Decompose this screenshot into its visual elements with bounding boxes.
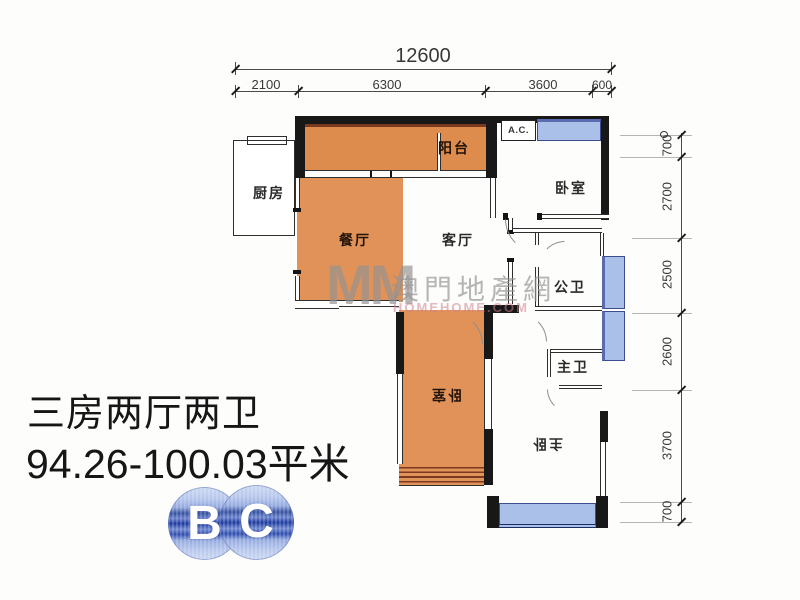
- room-label-bedroom-mid: 卧室: [424, 388, 468, 402]
- block-logo-circle-c: C: [219, 485, 294, 560]
- window-master-bath: [602, 311, 625, 361]
- room-label-kitchen: 厨房: [247, 186, 291, 200]
- wall: [596, 496, 608, 528]
- door-arc: [539, 241, 565, 267]
- room-label-dining: 餐厅: [333, 233, 377, 247]
- wall-thin: [295, 276, 300, 302]
- door-jamb: [293, 208, 301, 212]
- dim-line: [681, 133, 682, 523]
- door-jamb: [293, 270, 301, 274]
- wall-thin: [295, 178, 300, 210]
- door-arc: [518, 313, 547, 342]
- dim-right-seg1: 700: [661, 118, 674, 174]
- door-jamb: [390, 171, 392, 177]
- dim-right-seg3: 2500: [661, 247, 674, 303]
- dim-top-total: 12600: [373, 46, 473, 66]
- wall: [600, 411, 608, 442]
- dim-right-seg2: 2700: [661, 169, 674, 225]
- block-logo-letter-c: C: [219, 485, 294, 560]
- dim-right-seg5: 3700: [661, 418, 674, 474]
- wall-thin: [600, 233, 604, 256]
- room-label-bedroom-top: 卧室: [549, 181, 593, 195]
- dim-right-seg4: 2600: [661, 324, 674, 380]
- watermark-site-url: HOMEHOME.COM: [393, 300, 529, 315]
- wall: [486, 116, 497, 178]
- dim-top-seg4: 600: [584, 79, 620, 91]
- floorplan-canvas: 12600 2100 6300 3600 600 700 2700 2500 2…: [0, 0, 800, 600]
- wall: [601, 116, 609, 220]
- door-arc: [547, 389, 571, 413]
- dim-extension: [632, 238, 692, 239]
- room-label-master-bath: 主卫: [551, 360, 595, 374]
- dim-top-seg3: 3600: [518, 78, 568, 91]
- area-range-text: 94.26-100.03平米: [26, 430, 350, 490]
- room-label-balcony: 阳台: [432, 141, 476, 155]
- door-jamb: [370, 171, 372, 177]
- wall-thin: [490, 178, 496, 218]
- layout-type-text: 三房两厅两卫: [27, 382, 261, 437]
- window-line: [397, 374, 403, 464]
- wall-thin: [541, 214, 609, 219]
- window-public-bath: [602, 256, 625, 309]
- balcony-slider: [305, 170, 486, 178]
- wall-thin: [547, 349, 602, 353]
- door-jamb: [507, 258, 514, 262]
- dim-extension: [632, 390, 692, 391]
- door-arc: [505, 219, 539, 253]
- wall: [487, 496, 499, 528]
- wall: [484, 429, 493, 485]
- wall: [295, 116, 497, 124]
- dim-right-seg6: 700: [661, 484, 674, 540]
- kitchen-window-mullion: [248, 140, 286, 141]
- room-label-living: 客厅: [436, 233, 480, 247]
- dim-extension: [632, 313, 692, 314]
- dim-top-seg1: 2100: [241, 78, 291, 91]
- wall: [396, 312, 404, 374]
- room-label-master-bedroom: 主卧: [525, 437, 569, 451]
- bay-window-master-bedroom: [499, 503, 596, 528]
- ac-label: A.C.: [501, 126, 536, 136]
- bay-sill-bedroom-mid: [399, 464, 484, 486]
- dim-top-seg2: 6300: [362, 78, 412, 91]
- window-line: [600, 442, 606, 496]
- window-top: [537, 119, 601, 141]
- dim-line: [235, 69, 612, 70]
- wall: [295, 116, 305, 178]
- window-line: [484, 359, 492, 429]
